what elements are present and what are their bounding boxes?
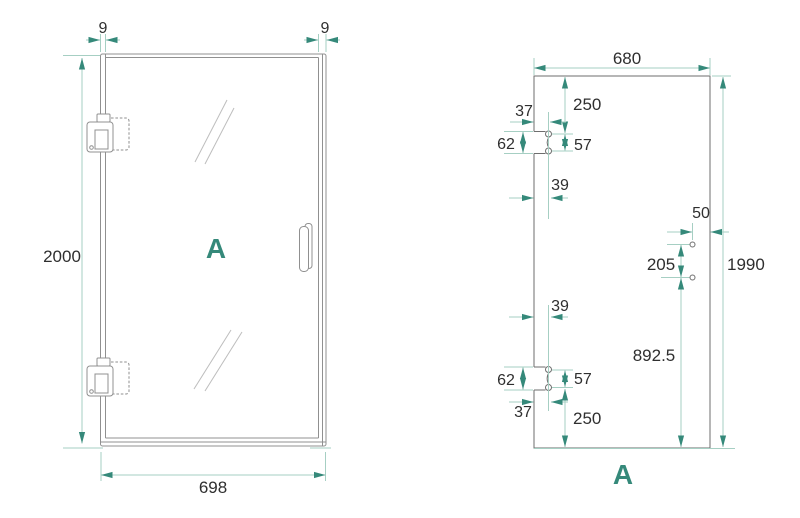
dim-glass-height: 1990 xyxy=(727,255,765,274)
dim-door-width: 698 xyxy=(199,478,227,497)
top-hinge xyxy=(87,114,129,152)
handle-mounting-holes xyxy=(690,242,695,280)
glass-panel-outline xyxy=(534,76,710,448)
dim-frame-thickness-left: 9 xyxy=(99,20,108,37)
dim-top-cutout-edge-offset: 37 xyxy=(515,103,533,120)
glass-view-dimensions: 680 1990 250 37 62 57 xyxy=(497,49,765,449)
dim-bottom-cutout-edge-offset: 37 xyxy=(514,404,532,421)
front-view: 9 9 2000 698 A xyxy=(43,20,340,497)
dim-top-cutout-from-top: 250 xyxy=(573,95,601,114)
door-handle xyxy=(300,224,313,272)
handle-hole-upper xyxy=(690,242,695,247)
shower-door-technical-drawing: 9 9 2000 698 A xyxy=(0,0,800,518)
dim-bottom-cutout-height: 62 xyxy=(497,372,515,389)
dim-glass-width: 680 xyxy=(613,49,641,68)
dim-handle-hole-spacing: 205 xyxy=(647,255,675,274)
dim-handle-holes-from-bottom: 892.5 xyxy=(633,346,676,365)
front-panel-label: A xyxy=(206,233,226,264)
glass-panel-view: 680 1990 250 37 62 57 xyxy=(497,49,765,490)
bottom-hinge xyxy=(87,358,129,396)
dim-top-cutout-height: 62 xyxy=(497,136,515,153)
dim-top-cutout-hole-spacing: 57 xyxy=(574,137,592,154)
dim-bottom-cutout-depth: 39 xyxy=(551,298,569,315)
dim-top-cutout-depth: 39 xyxy=(551,177,569,194)
dim-door-height: 2000 xyxy=(43,247,81,266)
dim-frame-thickness-right: 9 xyxy=(321,20,330,37)
dim-handle-hole-edge-distance: 50 xyxy=(692,205,710,222)
dim-bottom-cutout-hole-spacing: 57 xyxy=(574,371,592,388)
glass-panel-label: A xyxy=(613,459,633,490)
handle-hole-lower xyxy=(690,275,695,280)
dim-bottom-cutout-from-bottom: 250 xyxy=(573,409,601,428)
